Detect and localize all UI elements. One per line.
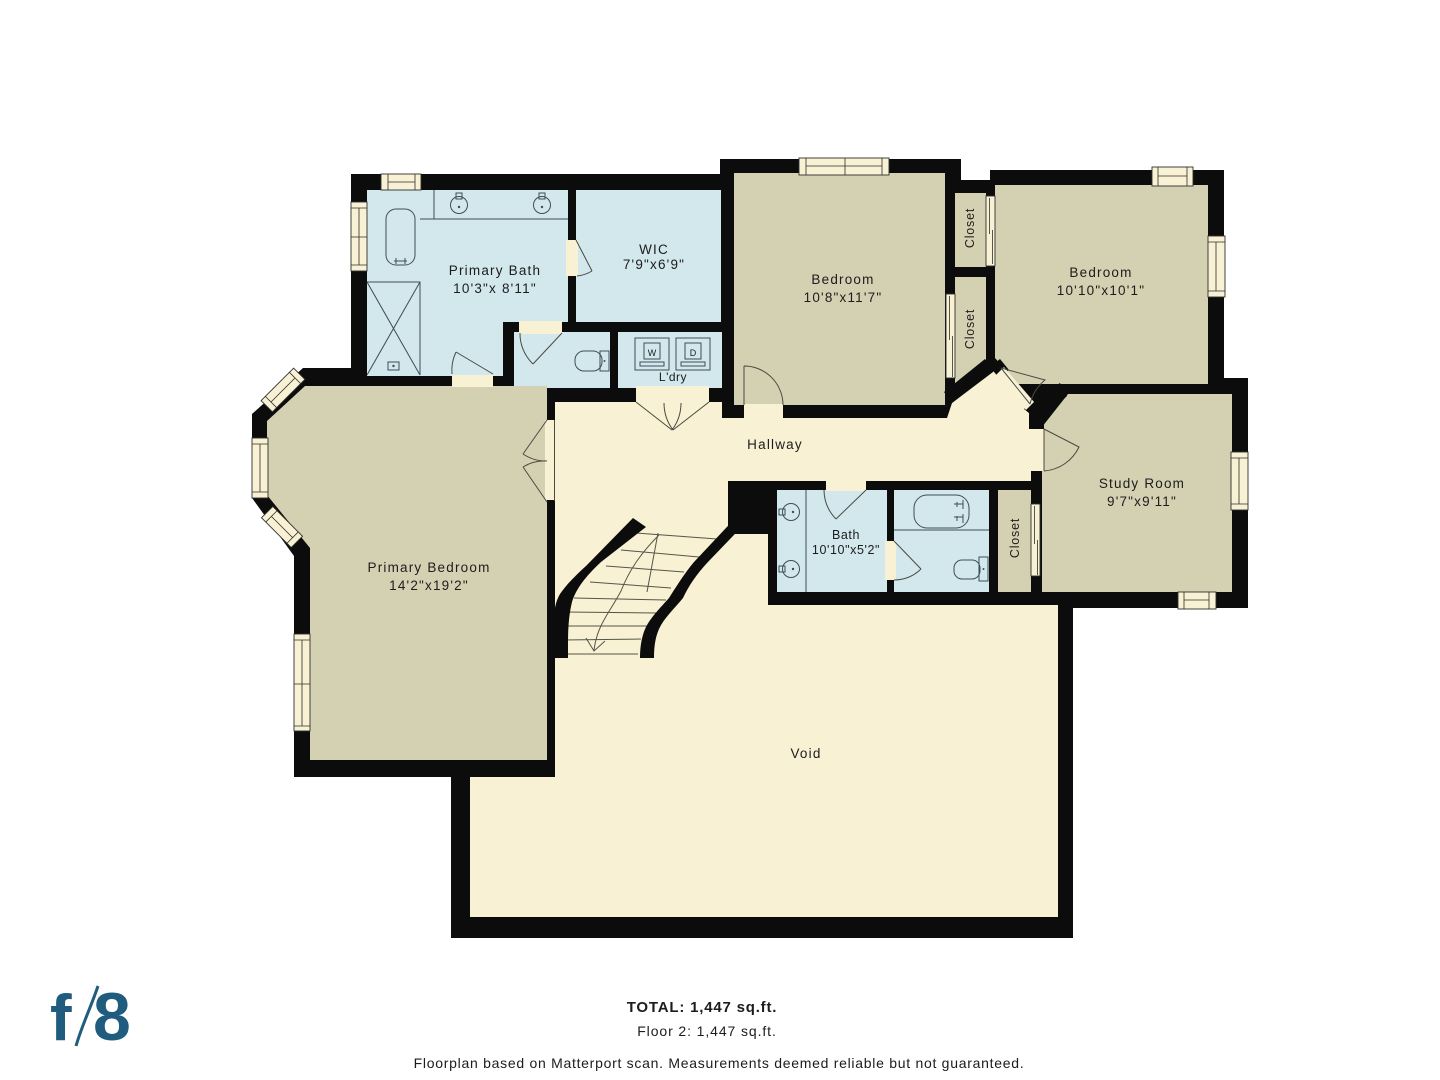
svg-text:L'dry: L'dry bbox=[659, 370, 687, 384]
svg-text:Primary Bedroom: Primary Bedroom bbox=[367, 560, 490, 575]
svg-text:TOTAL: 1,447 sq.ft.: TOTAL: 1,447 sq.ft. bbox=[627, 999, 778, 1016]
svg-text:Bedroom: Bedroom bbox=[1069, 265, 1132, 280]
svg-text:WIC: WIC bbox=[639, 242, 669, 257]
svg-text:Floorplan based on Matterport: Floorplan based on Matterport scan. Meas… bbox=[414, 1055, 1025, 1071]
svg-text:10'3"x 8'11": 10'3"x 8'11" bbox=[453, 281, 537, 296]
svg-text:Primary Bath: Primary Bath bbox=[449, 263, 541, 278]
svg-text:Hallway: Hallway bbox=[747, 437, 803, 452]
svg-text:D: D bbox=[690, 348, 697, 358]
svg-text:Closet: Closet bbox=[963, 309, 977, 349]
svg-text:Bedroom: Bedroom bbox=[811, 272, 874, 287]
svg-text:8: 8 bbox=[93, 979, 131, 1055]
svg-text:Bath: Bath bbox=[832, 528, 860, 542]
svg-text:10'8"x11'7": 10'8"x11'7" bbox=[804, 290, 883, 305]
svg-text:W: W bbox=[648, 348, 657, 358]
svg-text:9'7"x9'11": 9'7"x9'11" bbox=[1107, 494, 1177, 509]
svg-text:Void: Void bbox=[790, 746, 821, 761]
svg-text:10'10"x10'1": 10'10"x10'1" bbox=[1057, 283, 1145, 298]
svg-text:Closet: Closet bbox=[963, 208, 977, 248]
svg-text:7'9"x6'9": 7'9"x6'9" bbox=[623, 257, 685, 272]
svg-text:14'2"x19'2": 14'2"x19'2" bbox=[389, 578, 469, 593]
svg-text:10'10"x5'2": 10'10"x5'2" bbox=[812, 543, 880, 557]
svg-text:Closet: Closet bbox=[1008, 518, 1022, 558]
svg-text:f: f bbox=[50, 981, 72, 1054]
svg-text:Floor 2: 1,447 sq.ft.: Floor 2: 1,447 sq.ft. bbox=[637, 1023, 777, 1039]
svg-text:Study Room: Study Room bbox=[1099, 476, 1185, 491]
